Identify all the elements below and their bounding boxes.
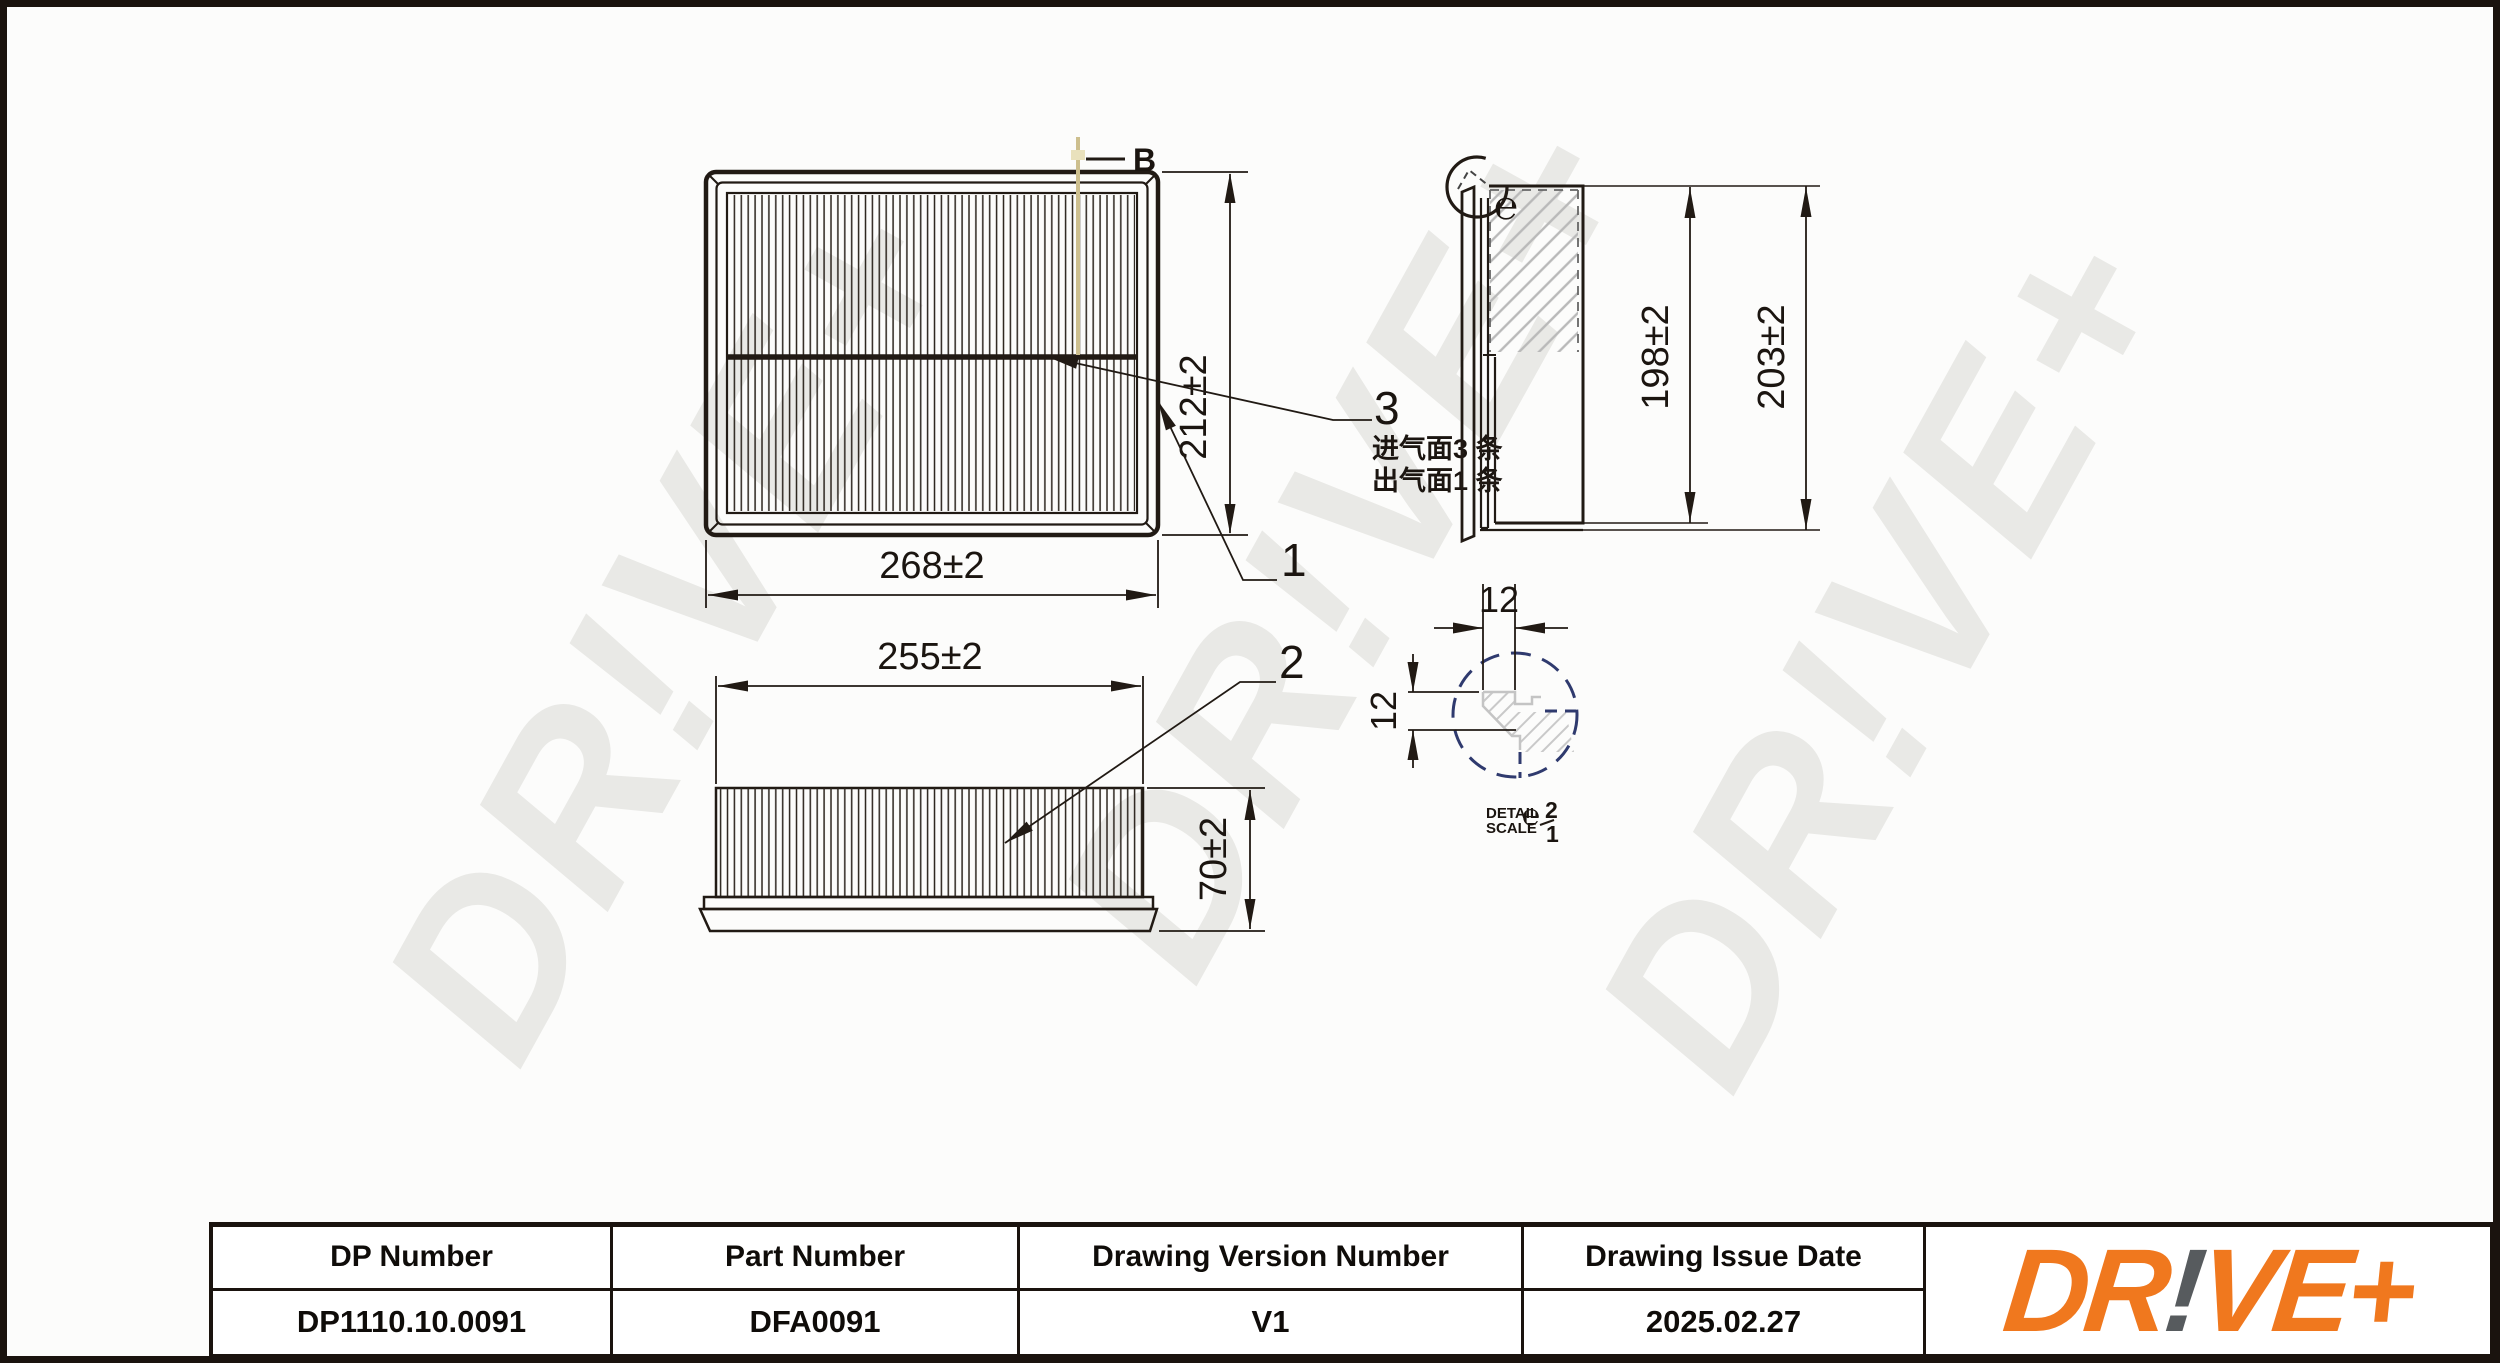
detail-marker-on-view: ℮	[1494, 184, 1518, 228]
drive-plus-logo: DR!VE+	[1999, 1232, 2417, 1350]
value-issue-date: 2025.02.27	[1524, 1291, 1926, 1355]
header-part-number: Part Number	[613, 1227, 1020, 1291]
dim-side-height: 70±2	[1193, 817, 1235, 901]
detail-scale-denominator: 1	[1546, 821, 1559, 847]
logo-part-ve-plus: VE+	[2193, 1225, 2418, 1357]
section-line-marker	[1071, 150, 1085, 160]
top-view-filter-panel	[706, 137, 1158, 535]
dim-top-width: 268±2	[879, 545, 984, 587]
header-drawing-version: Drawing Version Number	[1020, 1227, 1524, 1291]
value-part-number: DFA0091	[613, 1291, 1020, 1355]
dim-side-width: 255±2	[877, 636, 982, 678]
dim-detail-width: 12	[1479, 579, 1519, 620]
engineering-drawing-canvas: B 268±2 212±2 1 3 进气面3 条 出气面1	[0, 0, 2500, 1363]
pleated-media-side	[716, 788, 1143, 897]
dim-detail-height: 12	[1363, 691, 1404, 731]
header-dp-number: DP Number	[213, 1227, 613, 1291]
value-drawing-version: V1	[1020, 1291, 1524, 1355]
detail-scale-note: DETAIL SCALE ℮ 2 1	[1486, 797, 1559, 847]
dim-profile-outer-height: 203±2	[1751, 304, 1793, 409]
value-dp-number: DP1110.10.0091	[213, 1291, 613, 1355]
brand-logo: DR!VE+	[1926, 1227, 2490, 1354]
callout-label-3: 3	[1374, 382, 1400, 434]
header-issue-date: Drawing Issue Date	[1524, 1227, 1926, 1291]
detail-hatched-profile	[1483, 692, 1574, 752]
section-label-b: B	[1133, 142, 1156, 178]
dim-profile-inner-height: 198±2	[1635, 304, 1677, 409]
note-outlet-cn: 出气面1 条	[1372, 466, 1504, 496]
note-intake-cn: 进气面3 条	[1372, 434, 1504, 464]
detail-note-marker: ℮	[1522, 799, 1540, 832]
base-tray	[700, 909, 1157, 931]
logo-part-dr: DR	[1998, 1225, 2172, 1357]
detail-scale-numerator: 2	[1545, 797, 1558, 823]
side-view-filter	[700, 788, 1157, 931]
title-block-table: DP Number Part Number Drawing Version Nu…	[209, 1222, 2494, 1358]
callout-label-1: 1	[1281, 534, 1307, 586]
pleated-media-area	[729, 195, 1135, 511]
technical-drawing-sheet: DR!VE+ DR!VE+ DR!VE+	[0, 0, 2500, 1363]
callout-label-2: 2	[1279, 636, 1305, 688]
